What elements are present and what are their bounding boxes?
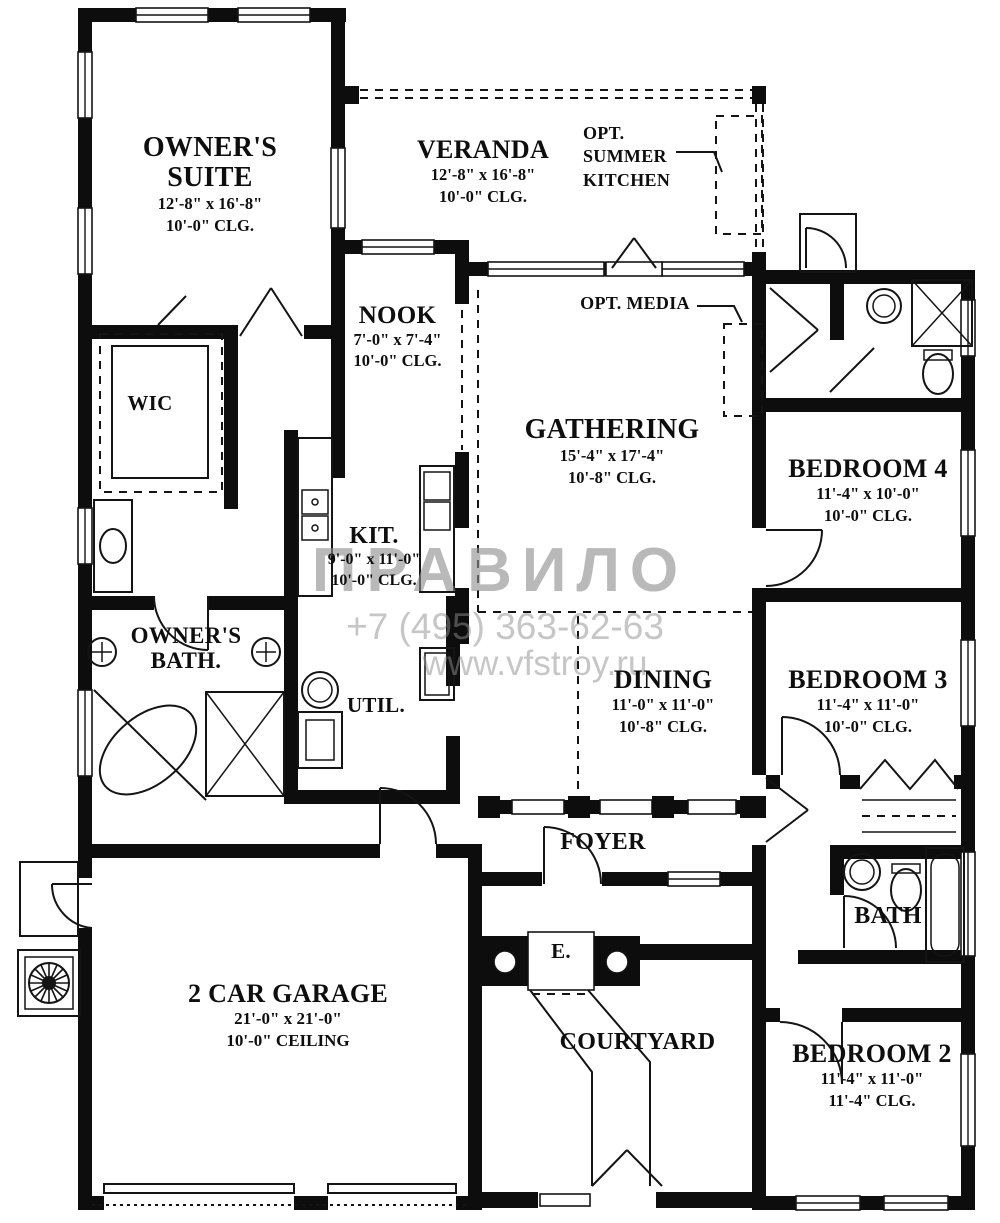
label-opt-media: OPT. MEDIA	[570, 294, 700, 313]
bath3-sink	[867, 289, 901, 323]
label-gathering: GATHERING 15'-4" x 17'-4" 10'-8" CLG.	[502, 415, 722, 488]
bath2-tub-inner	[931, 854, 959, 956]
stoop	[20, 862, 78, 936]
label-bedroom4: BEDROOM 4 11'-4" x 10'-0" 10'-0" CLG.	[773, 455, 963, 526]
owners-tub	[83, 688, 213, 812]
label-owners-bath: OWNER'S BATH.	[110, 624, 262, 674]
label-opt-summer-kitchen: OPT. SUMMER KITCHEN	[583, 122, 687, 192]
linen-bifold-doors	[860, 760, 958, 789]
label-wic: WIC	[112, 392, 188, 415]
courtyard-path	[530, 990, 592, 1186]
label-owners-suite: OWNER'S SUITE 12'-8" x 16'-8" 10'-0" CLG…	[120, 133, 300, 236]
garage-doors	[104, 1184, 456, 1193]
label-nook: NOOK 7'-0" x 7'-4" 10'-0" CLG.	[330, 302, 465, 372]
gate-wall	[540, 1194, 590, 1206]
entry-column	[494, 951, 516, 973]
label-garage: 2 CAR GARAGE 21'-0" x 21'-0" 10'-0" CEIL…	[168, 980, 408, 1052]
label-kitchen: KIT. 9'-0" x 11'-0" 10'-0" CLG.	[312, 524, 436, 592]
label-bedroom2: BEDROOM 2 11'-4" x 11'-0" 11'-4" CLG.	[777, 1040, 967, 1111]
tub-platform	[94, 690, 206, 800]
label-util: UTIL.	[336, 694, 416, 717]
kitchen-sink	[302, 490, 328, 514]
label-bath: BATH	[846, 904, 930, 930]
range	[424, 472, 450, 500]
entry-column	[606, 951, 628, 973]
label-bedroom3: BEDROOM 3 11'-4" x 11'-0" 10'-0" CLG.	[773, 666, 963, 737]
label-foyer: FOYER	[548, 830, 658, 856]
label-dining: DINING 11'-0" x 11'-0" 10'-8" CLG.	[574, 666, 752, 737]
label-veranda: VERANDA 12'-8" x 16'-8" 10'-0" CLG.	[388, 136, 578, 207]
vanity-sink	[100, 529, 126, 563]
label-entry: E.	[538, 940, 584, 963]
opt-media-leader	[697, 306, 742, 322]
label-courtyard: COURTYARD	[545, 1030, 730, 1056]
floor-plan: OWNER'S SUITE 12'-8" x 16'-8" 10'-0" CLG…	[0, 0, 1000, 1223]
